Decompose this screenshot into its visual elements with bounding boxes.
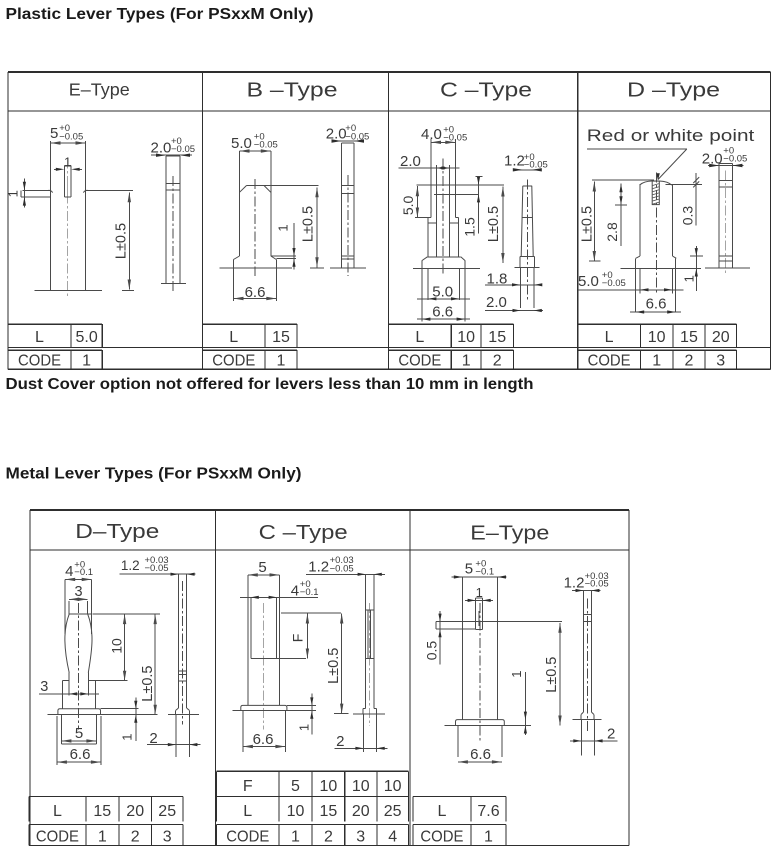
svg-text:15: 15 bbox=[272, 329, 290, 346]
svg-text:CODE: CODE bbox=[18, 352, 61, 369]
svg-text:6.6: 6.6 bbox=[646, 296, 667, 313]
svg-text:D –Type: D –Type bbox=[627, 79, 720, 101]
svg-text:5.0: 5.0 bbox=[75, 329, 97, 346]
svg-text:−0.05: −0.05 bbox=[330, 564, 354, 575]
svg-text:CODE: CODE bbox=[212, 352, 255, 369]
svg-text:2.0: 2.0 bbox=[326, 126, 347, 143]
svg-text:10: 10 bbox=[109, 638, 125, 654]
svg-text:F: F bbox=[243, 778, 253, 795]
svg-text:5: 5 bbox=[50, 125, 58, 142]
svg-text:L: L bbox=[605, 329, 614, 346]
svg-text:Metal Lever Types (For PSxxM: Metal Lever Types (For PSxxM Only) bbox=[6, 465, 302, 482]
svg-text:25: 25 bbox=[384, 803, 402, 820]
svg-text:−0.05: −0.05 bbox=[524, 159, 548, 170]
svg-text:3: 3 bbox=[716, 352, 725, 369]
svg-text:1: 1 bbox=[509, 670, 524, 677]
svg-text:3: 3 bbox=[356, 828, 365, 845]
svg-text:15: 15 bbox=[680, 329, 698, 346]
svg-text:10: 10 bbox=[352, 778, 370, 795]
svg-text:1.5: 1.5 bbox=[462, 217, 478, 237]
svg-text:L: L bbox=[229, 329, 238, 346]
svg-text:20: 20 bbox=[352, 803, 370, 820]
svg-text:3: 3 bbox=[163, 828, 172, 845]
svg-text:15: 15 bbox=[320, 803, 338, 820]
svg-text:4: 4 bbox=[291, 583, 299, 600]
svg-text:15: 15 bbox=[93, 803, 111, 820]
svg-text:C –Type: C –Type bbox=[440, 79, 532, 101]
svg-text:7.6: 7.6 bbox=[477, 803, 499, 820]
svg-text:Red or white point: Red or white point bbox=[587, 127, 755, 145]
svg-text:1: 1 bbox=[98, 828, 107, 845]
svg-text:L: L bbox=[35, 329, 44, 346]
svg-text:1: 1 bbox=[5, 190, 20, 197]
svg-text:2: 2 bbox=[336, 733, 344, 750]
svg-text:2.0: 2.0 bbox=[486, 294, 507, 311]
svg-text:−0.1: −0.1 bbox=[475, 567, 494, 578]
svg-text:5: 5 bbox=[258, 559, 266, 576]
svg-text:CODE: CODE bbox=[420, 828, 463, 845]
svg-text:2.0: 2.0 bbox=[151, 139, 172, 156]
svg-text:−0.05: −0.05 bbox=[254, 140, 278, 151]
svg-text:6.6: 6.6 bbox=[470, 746, 491, 763]
svg-text:5: 5 bbox=[75, 725, 83, 742]
svg-text:3: 3 bbox=[74, 584, 82, 600]
svg-text:20: 20 bbox=[712, 329, 730, 346]
svg-text:−0.05: −0.05 bbox=[145, 563, 169, 574]
svg-text:5.0: 5.0 bbox=[400, 195, 416, 215]
svg-text:6.6: 6.6 bbox=[253, 731, 274, 748]
svg-text:CODE: CODE bbox=[588, 352, 631, 369]
svg-text:1: 1 bbox=[652, 352, 661, 369]
svg-text:0.5: 0.5 bbox=[423, 641, 439, 661]
svg-text:L: L bbox=[415, 329, 424, 346]
svg-text:10: 10 bbox=[384, 778, 402, 795]
svg-text:L±0.5: L±0.5 bbox=[113, 223, 129, 259]
svg-text:2.0: 2.0 bbox=[400, 153, 421, 170]
svg-text:−0.1: −0.1 bbox=[300, 587, 319, 598]
svg-text:L: L bbox=[437, 803, 446, 820]
svg-text:1: 1 bbox=[484, 828, 493, 845]
svg-text:3: 3 bbox=[40, 679, 48, 695]
svg-text:10: 10 bbox=[320, 778, 338, 795]
svg-text:1: 1 bbox=[476, 585, 483, 600]
svg-text:1.2: 1.2 bbox=[308, 559, 329, 576]
svg-text:1: 1 bbox=[277, 352, 286, 369]
svg-text:Dust Cover option not offered: Dust Cover option not offered for levers… bbox=[6, 376, 534, 393]
svg-text:2.8: 2.8 bbox=[604, 222, 620, 242]
svg-text:4.0: 4.0 bbox=[421, 126, 442, 143]
svg-text:5.0: 5.0 bbox=[578, 273, 599, 290]
svg-text:L±0.5: L±0.5 bbox=[544, 657, 560, 693]
svg-text:2: 2 bbox=[493, 352, 502, 369]
svg-text:6.6: 6.6 bbox=[70, 746, 91, 763]
svg-text:CODE: CODE bbox=[36, 828, 79, 845]
svg-text:−0.05: −0.05 bbox=[723, 153, 747, 164]
svg-text:L±0.5: L±0.5 bbox=[326, 648, 342, 684]
svg-text:1: 1 bbox=[297, 724, 312, 731]
svg-text:L: L bbox=[243, 803, 252, 820]
svg-text:10: 10 bbox=[648, 329, 666, 346]
svg-text:1.2: 1.2 bbox=[121, 558, 140, 573]
svg-text:E–Type: E–Type bbox=[69, 80, 130, 100]
svg-text:C –Type: C –Type bbox=[259, 522, 348, 544]
svg-text:−0.05: −0.05 bbox=[585, 579, 609, 590]
svg-text:25: 25 bbox=[158, 803, 176, 820]
svg-text:2: 2 bbox=[131, 828, 140, 845]
svg-text:−0.1: −0.1 bbox=[74, 567, 93, 578]
svg-text:2: 2 bbox=[324, 828, 333, 845]
svg-text:5: 5 bbox=[465, 561, 473, 578]
svg-text:2: 2 bbox=[607, 725, 615, 742]
svg-text:1: 1 bbox=[120, 733, 135, 740]
svg-text:B –Type: B –Type bbox=[247, 79, 338, 101]
svg-text:15: 15 bbox=[488, 329, 506, 346]
svg-text:L±0.5: L±0.5 bbox=[301, 206, 317, 242]
svg-text:10: 10 bbox=[287, 803, 305, 820]
svg-text:1.2: 1.2 bbox=[504, 153, 525, 170]
svg-text:F: F bbox=[289, 634, 305, 643]
svg-text:−0.05: −0.05 bbox=[171, 144, 195, 155]
svg-text:1.2: 1.2 bbox=[564, 575, 585, 592]
svg-text:1: 1 bbox=[275, 224, 290, 231]
svg-text:L: L bbox=[53, 803, 62, 820]
svg-text:10: 10 bbox=[457, 329, 475, 346]
svg-text:4: 4 bbox=[388, 828, 397, 845]
svg-text:CODE: CODE bbox=[398, 352, 441, 369]
svg-text:2: 2 bbox=[684, 352, 693, 369]
svg-text:E–Type: E–Type bbox=[470, 523, 549, 545]
svg-text:1: 1 bbox=[462, 352, 471, 369]
svg-text:1: 1 bbox=[291, 828, 300, 845]
svg-text:CODE: CODE bbox=[226, 828, 269, 845]
svg-text:1: 1 bbox=[682, 275, 697, 282]
svg-text:−0.05: −0.05 bbox=[602, 278, 626, 289]
svg-text:5: 5 bbox=[291, 778, 300, 795]
svg-text:4: 4 bbox=[65, 563, 73, 580]
svg-text:1: 1 bbox=[64, 155, 71, 170]
svg-text:20: 20 bbox=[126, 803, 144, 820]
svg-text:−0.05: −0.05 bbox=[59, 131, 83, 142]
svg-text:Plastic Lever Types (For PSxx: Plastic Lever Types (For PSxxM Only) bbox=[6, 6, 314, 23]
svg-text:L±0.5: L±0.5 bbox=[486, 206, 502, 242]
svg-text:0.3: 0.3 bbox=[679, 206, 695, 226]
svg-text:1: 1 bbox=[82, 352, 91, 369]
svg-text:6.6: 6.6 bbox=[432, 303, 453, 320]
svg-text:L±0.5: L±0.5 bbox=[579, 206, 595, 242]
svg-text:L±0.5: L±0.5 bbox=[140, 666, 156, 702]
svg-text:D–Type: D–Type bbox=[75, 521, 159, 543]
